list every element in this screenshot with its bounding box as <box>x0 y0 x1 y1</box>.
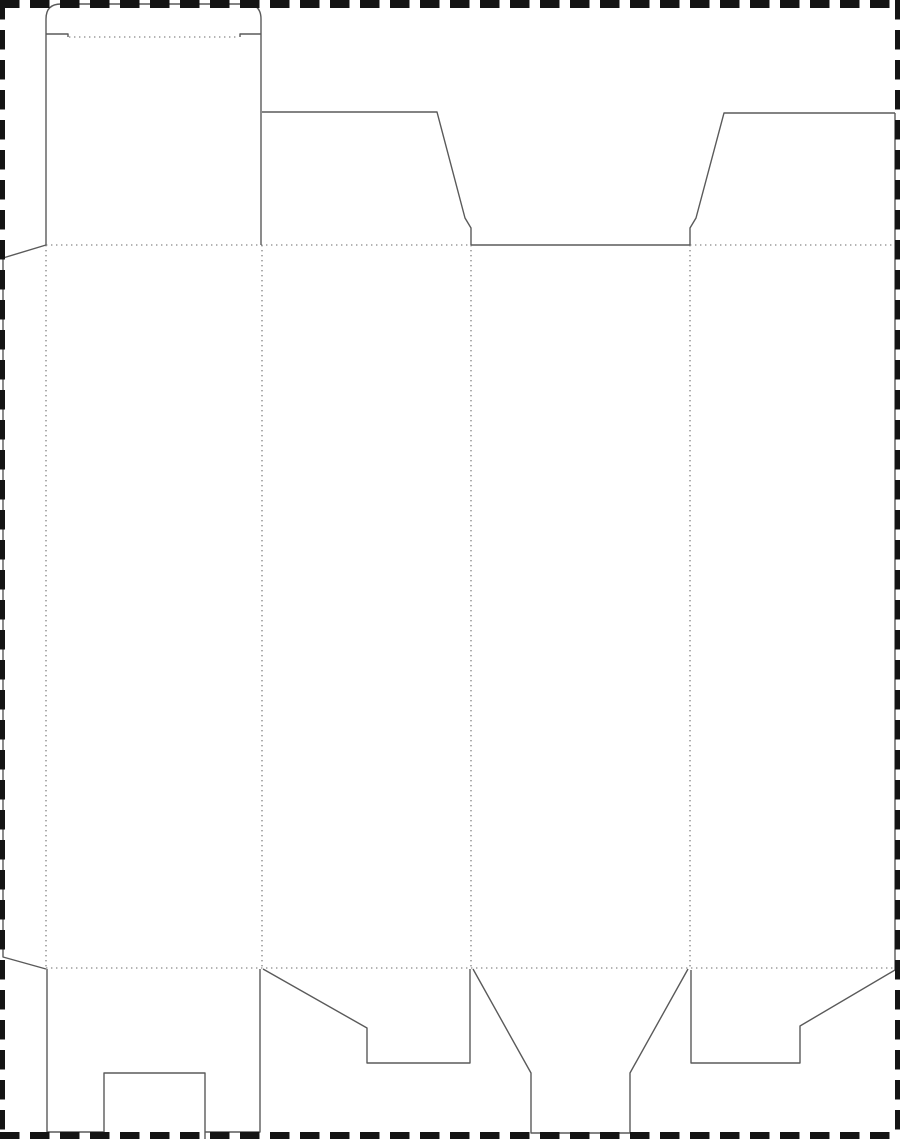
bottom-flap-front <box>47 969 260 1139</box>
tuck-shoulder-left <box>46 34 68 37</box>
bottom-flap-side-right <box>691 970 895 1063</box>
cut-lines-layer <box>3 4 895 1139</box>
dieline-template-svg <box>0 0 900 1139</box>
bottom-flap-side-left <box>263 969 470 1063</box>
tuck-flap-outline <box>46 4 261 245</box>
bottom-flap-funnel <box>473 969 688 1133</box>
dieline-page <box>0 0 900 1139</box>
dust-flap-right-outline <box>690 113 895 245</box>
fold-lines-layer <box>46 37 895 968</box>
dashed-cut-border <box>0 0 900 1139</box>
glue-flap-outline <box>3 245 46 969</box>
tuck-shoulder-right <box>240 34 261 37</box>
dust-flap-left-outline <box>262 112 471 245</box>
